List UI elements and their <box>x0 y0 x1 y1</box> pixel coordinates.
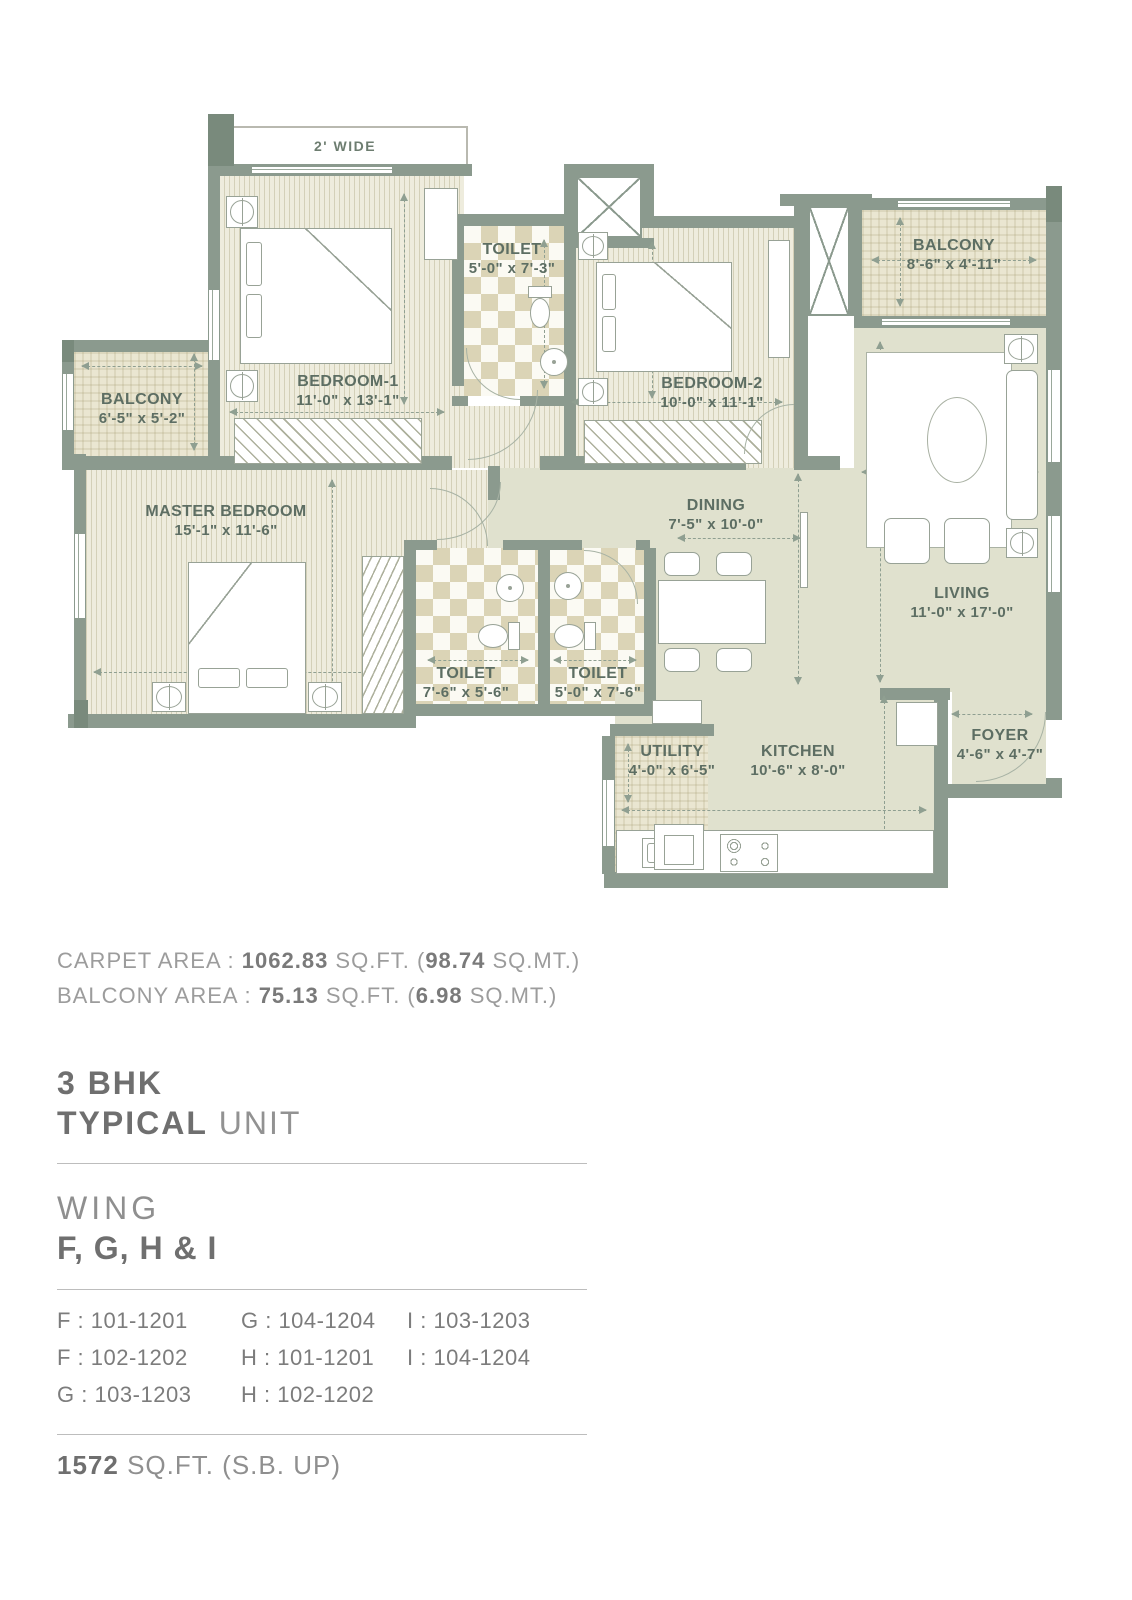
carpet-area-mid: SQ.FT. ( <box>328 948 425 973</box>
room-name: BALCONY <box>907 236 1002 256</box>
dimension-line <box>554 660 636 661</box>
pillow <box>602 316 616 352</box>
saleable-area-line: 1572 SQ.FT. (S.B. UP) <box>57 1450 341 1481</box>
wall <box>642 176 654 228</box>
study-unit-icon <box>768 240 790 358</box>
armchair-icon <box>884 518 930 564</box>
stove-icon <box>720 834 778 872</box>
wall <box>610 724 714 736</box>
window <box>75 534 85 618</box>
pillow <box>246 668 288 688</box>
nightstand-icon <box>308 682 342 712</box>
wall <box>68 340 216 352</box>
dresser-icon <box>424 188 458 260</box>
shower-icon <box>554 572 582 600</box>
column <box>62 340 74 362</box>
pillow <box>602 274 616 310</box>
saleable-area-suffix: SQ.FT. (S.B. UP) <box>119 1450 341 1480</box>
room-label-toilet-top: TOILET 5'-0" x 7'-3" <box>469 240 556 278</box>
wall <box>780 194 872 206</box>
saleable-area-value: 1572 <box>57 1450 119 1480</box>
chair-icon <box>716 552 752 576</box>
bed-fold <box>188 562 252 645</box>
room-label-living: LIVING 11'-0" x 17'-0" <box>910 584 1013 622</box>
room-label-master: MASTER BEDROOM 15'-1" x 11'-6" <box>145 502 306 540</box>
room-label-dining: DINING 7'-5" x 10'-0" <box>668 496 763 534</box>
room-dims: 11'-0" x 13'-1" <box>296 392 399 410</box>
room-name: BALCONY <box>99 390 186 410</box>
shaft-icon <box>808 206 850 316</box>
side-table-icon <box>1004 334 1038 364</box>
wc-tank-icon <box>528 286 552 298</box>
room-dims: 8'-6" x 4'-11" <box>907 256 1002 274</box>
armchair-icon <box>944 518 990 564</box>
window <box>898 201 1010 207</box>
bed-icon <box>596 262 732 372</box>
balcony-area-line: BALCONY AREA : 75.13 SQ.FT. (6.98 SQ.MT.… <box>57 983 557 1009</box>
room-name: LIVING <box>910 584 1013 604</box>
nightstand-icon <box>152 682 186 712</box>
nightstand-icon <box>226 196 258 228</box>
room-name: TOILET <box>423 664 510 684</box>
wing-label: WING <box>57 1190 160 1227</box>
window <box>63 374 73 430</box>
unit-range: H : 102-1202 <box>241 1382 407 1408</box>
room-label-toilet-common: TOILET 5'-0" x 7'-6" <box>555 664 642 702</box>
pillow <box>246 294 262 338</box>
dimension-line <box>622 810 926 811</box>
cabinet-icon <box>652 700 702 724</box>
nightstand-icon <box>578 378 608 406</box>
chair-icon <box>664 648 700 672</box>
sofa-icon <box>1006 370 1038 520</box>
dining-table-icon <box>658 580 766 644</box>
unit-range: G : 104-1204 <box>241 1308 407 1334</box>
room-label-bedroom2: BEDROOM-2 10'-0" x 11'-1" <box>660 374 763 412</box>
nightstand-icon <box>578 232 608 260</box>
room-name: BEDROOM-2 <box>660 374 763 394</box>
wardrobe-icon <box>584 420 762 464</box>
unit-range: F : 102-1202 <box>57 1345 241 1371</box>
balcony-area-sqmt: 6.98 <box>416 983 463 1008</box>
dimension-line <box>332 480 333 706</box>
unit-type-title-line1: 3 BHK <box>57 1065 163 1102</box>
wall <box>452 396 468 406</box>
window <box>1048 516 1060 592</box>
wall <box>404 548 416 714</box>
unit-range: I : 104-1204 <box>407 1345 579 1371</box>
dimension-line <box>82 366 202 367</box>
ledge-2ft-wide: 2' WIDE <box>222 126 468 166</box>
wall <box>564 164 576 468</box>
dimension-line <box>230 412 444 413</box>
cabinet-icon <box>896 702 938 746</box>
dimension-line <box>900 218 901 306</box>
carpet-area-sqmt: 98.74 <box>425 948 485 973</box>
window <box>1048 370 1060 462</box>
room-dims: 4'-6" x 4'-7" <box>957 746 1044 764</box>
nightstand-icon <box>226 370 258 402</box>
shower-icon <box>540 348 568 376</box>
room-label-balcony-ne: BALCONY 8'-6" x 4'-11" <box>907 236 1002 274</box>
divider <box>57 1163 587 1164</box>
wardrobe-icon <box>362 556 404 714</box>
wall <box>644 548 656 706</box>
ledge-label: 2' WIDE <box>314 138 376 154</box>
dimension-line <box>194 354 195 450</box>
balcony-area-suffix: SQ.MT.) <box>463 983 558 1008</box>
wall <box>850 206 862 316</box>
room-dims: 5'-0" x 7'-6" <box>555 684 642 702</box>
carpet-area-sqft: 1062.83 <box>242 948 329 973</box>
room-dims: 7'-6" x 5'-6" <box>423 684 510 702</box>
chair-icon <box>664 552 700 576</box>
room-dims: 6'-5" x 5'-2" <box>99 410 186 428</box>
unit-number-grid: F : 101-1201 G : 104-1204 I : 103-1203 F… <box>57 1308 579 1408</box>
window <box>252 167 392 173</box>
unit-type-bold: TYPICAL <box>57 1105 208 1141</box>
room-dims: 4'-0" x 6'-5" <box>629 762 716 780</box>
washing-machine-door <box>664 835 694 865</box>
room-name: KITCHEN <box>750 742 845 762</box>
room-dims: 15'-1" x 11'-6" <box>145 522 306 540</box>
unit-range: G : 103-1203 <box>57 1382 241 1408</box>
room-dims: 7'-5" x 10'-0" <box>668 516 763 534</box>
room-name: UTILITY <box>629 742 716 762</box>
tv-unit-icon <box>800 512 808 588</box>
wall <box>1046 778 1062 798</box>
wc-icon <box>530 298 550 328</box>
room-label-utility: UTILITY 4'-0" x 6'-5" <box>629 742 716 780</box>
washing-machine-icon <box>654 824 704 870</box>
room-name: BEDROOM-1 <box>296 372 399 392</box>
shower-icon <box>496 574 524 602</box>
wall <box>68 714 416 728</box>
wall <box>642 216 806 228</box>
carpet-area-line: CARPET AREA : 1062.83 SQ.FT. (98.74 SQ.M… <box>57 948 580 974</box>
room-label-kitchen: KITCHEN 10'-6" x 8'-0" <box>750 742 845 780</box>
dimension-line <box>678 538 800 539</box>
divider <box>57 1289 587 1290</box>
room-dims: 10'-0" x 11'-1" <box>660 394 763 412</box>
unit-range: H : 101-1201 <box>241 1345 407 1371</box>
balcony-area-mid: SQ.FT. ( <box>319 983 416 1008</box>
balcony-area-sqft: 75.13 <box>259 983 319 1008</box>
wall <box>404 704 652 716</box>
wall <box>948 784 1060 798</box>
room-label-balcony-w: BALCONY 6'-5" x 5'-2" <box>99 390 186 428</box>
window <box>882 319 1010 325</box>
unit-type-light: UNIT <box>208 1105 302 1141</box>
unit-range: F : 101-1201 <box>57 1308 241 1334</box>
room-name: MASTER BEDROOM <box>145 502 306 522</box>
room-label-toilet-master: TOILET 7'-6" x 5'-6" <box>423 664 510 702</box>
pillow <box>198 668 240 688</box>
room-label-bedroom1: BEDROOM-1 11'-0" x 13'-1" <box>296 372 399 410</box>
wall <box>538 548 550 706</box>
wc-icon <box>478 624 508 648</box>
window <box>603 780 614 846</box>
room-name: FOYER <box>957 726 1044 746</box>
bed-fold <box>654 262 732 329</box>
wall <box>794 206 808 468</box>
divider <box>57 1434 587 1435</box>
wc-tank-icon <box>508 622 520 650</box>
room-label-foyer: FOYER 4'-6" x 4'-7" <box>957 726 1044 764</box>
room-name: TOILET <box>469 240 556 260</box>
dimension-line <box>428 660 528 661</box>
wall <box>604 872 948 888</box>
carpet-area-suffix: SQ.MT.) <box>485 948 580 973</box>
wc-icon <box>554 624 584 648</box>
wing-value: F, G, H & I <box>57 1230 217 1267</box>
shaft-icon <box>576 176 642 238</box>
window <box>209 290 219 360</box>
carpet-area-label: CARPET AREA : <box>57 948 242 973</box>
bed-icon <box>188 562 306 714</box>
wall <box>452 214 576 226</box>
column <box>208 114 234 166</box>
rug-oval <box>927 397 987 483</box>
balcony-area-label: BALCONY AREA : <box>57 983 259 1008</box>
dimension-line <box>798 474 799 684</box>
room-name: DINING <box>668 496 763 516</box>
bed-fold <box>305 228 392 311</box>
corner-table-icon <box>1006 528 1038 558</box>
pillow <box>246 242 262 286</box>
room-dims: 10'-6" x 8'-0" <box>750 762 845 780</box>
room-dims: 5'-0" x 7'-3" <box>469 260 556 278</box>
column <box>74 700 88 728</box>
unit-range: I : 103-1203 <box>407 1308 579 1334</box>
wc-tank-icon <box>584 622 596 650</box>
wall <box>576 164 654 176</box>
chair-icon <box>716 648 752 672</box>
room-name: TOILET <box>555 664 642 684</box>
dimension-line <box>404 194 405 404</box>
unit-type-title-line2: TYPICAL UNIT <box>57 1105 301 1142</box>
wardrobe-icon <box>234 418 422 464</box>
column <box>1046 186 1062 222</box>
room-dims: 11'-0" x 17'-0" <box>910 604 1013 622</box>
bed-icon <box>240 228 392 364</box>
